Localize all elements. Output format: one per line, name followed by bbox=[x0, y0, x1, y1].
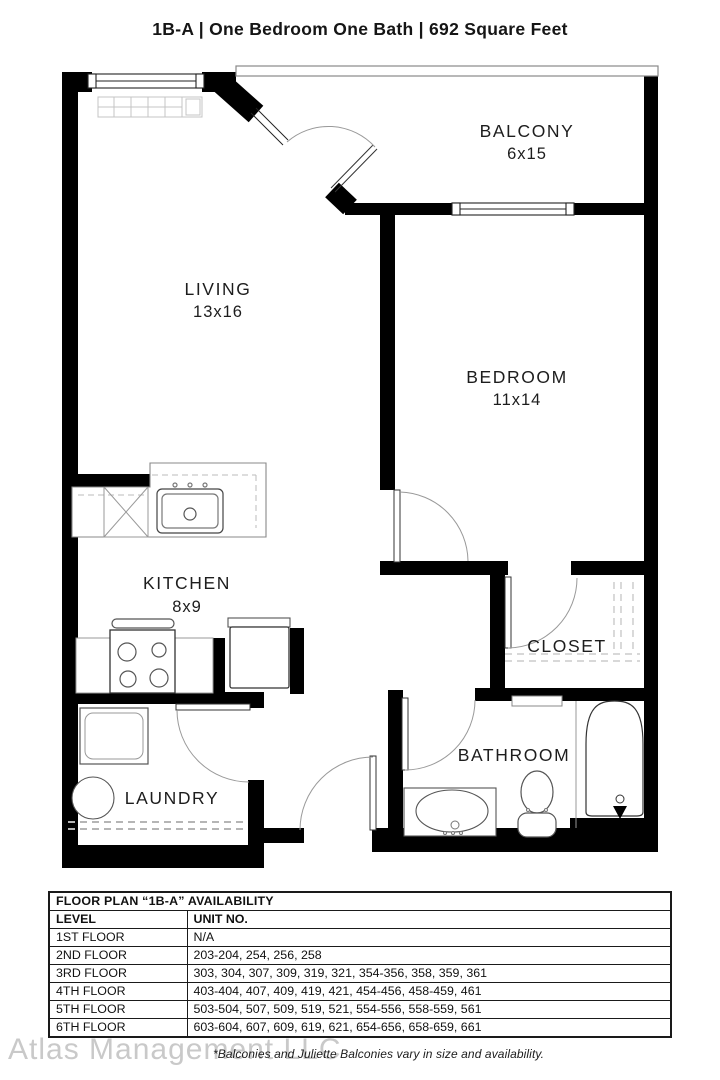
balcony-dims: 6x15 bbox=[507, 145, 547, 163]
table-row: 3RD FLOOR 303, 304, 307, 309, 319, 321, … bbox=[49, 965, 671, 983]
bedroom-window bbox=[452, 203, 574, 215]
level-cell: 1ST FLOOR bbox=[49, 929, 187, 947]
level-cell: 4TH FLOOR bbox=[49, 983, 187, 1001]
baseboard-heater-icon bbox=[98, 97, 202, 117]
floor-plan: LIVING 13x16 BALCONY 6x15 BEDROOM 11x14 … bbox=[0, 0, 720, 882]
laundry-shelf-dashed bbox=[68, 822, 246, 829]
kitchen-label: KITCHEN bbox=[143, 573, 231, 593]
fridge-icon bbox=[228, 618, 290, 688]
table-title-row: FLOOR PLAN “1B-A” AVAILABILITY bbox=[49, 892, 671, 911]
toilet-icon bbox=[518, 771, 556, 837]
units-cell: 303, 304, 307, 309, 319, 321, 354-356, 3… bbox=[187, 965, 671, 983]
bedroom-label: BEDROOM bbox=[466, 367, 568, 387]
closet-label: CLOSET bbox=[527, 636, 607, 656]
units-cell: 503-504, 507, 509, 519, 521, 554-556, 55… bbox=[187, 1001, 671, 1019]
living-dims: 13x16 bbox=[193, 303, 243, 321]
level-cell: 2ND FLOOR bbox=[49, 947, 187, 965]
living-label: LIVING bbox=[185, 279, 252, 299]
balcony-label: BALCONY bbox=[480, 121, 575, 141]
water-heater-icon bbox=[72, 777, 114, 819]
table-row: 4TH FLOOR 403-404, 407, 409, 419, 421, 4… bbox=[49, 983, 671, 1001]
units-cell: 403-404, 407, 409, 419, 421, 454-456, 45… bbox=[187, 983, 671, 1001]
vanity-sink-icon bbox=[404, 788, 496, 836]
table-row: 1ST FLOOR N/A bbox=[49, 929, 671, 947]
kitchen-sink-icon bbox=[157, 483, 223, 533]
floor-plan-sheet: 1B-A | One Bedroom One Bath | 692 Square… bbox=[0, 0, 720, 1080]
balcony-railing bbox=[236, 66, 658, 76]
balcony-door-sidelite bbox=[251, 108, 288, 145]
balcony-door bbox=[287, 126, 377, 192]
units-cell: N/A bbox=[187, 929, 671, 947]
bath-shelf bbox=[512, 696, 562, 706]
table-row: 2ND FLOOR 203-204, 254, 256, 258 bbox=[49, 947, 671, 965]
col-header-units: UNIT NO. bbox=[187, 911, 671, 929]
table-title: FLOOR PLAN “1B-A” AVAILABILITY bbox=[49, 892, 671, 911]
washer-icon bbox=[80, 708, 148, 764]
stove-icon bbox=[76, 619, 213, 693]
availability-table: FLOOR PLAN “1B-A” AVAILABILITY LEVEL UNI… bbox=[48, 891, 672, 1038]
laundry-door bbox=[176, 704, 250, 782]
table-row: 5TH FLOOR 503-504, 507, 509, 519, 521, 5… bbox=[49, 1001, 671, 1019]
level-cell: 3RD FLOOR bbox=[49, 965, 187, 983]
bathtub-icon bbox=[576, 701, 643, 828]
kitchen-dims: 8x9 bbox=[172, 598, 202, 616]
table-header-row: LEVEL UNIT NO. bbox=[49, 911, 671, 929]
col-header-level: LEVEL bbox=[49, 911, 187, 929]
bathroom-label: BATHROOM bbox=[458, 745, 571, 765]
bedroom-door bbox=[394, 490, 468, 562]
entry-door bbox=[300, 756, 376, 830]
balcony-disclaimer: *Balconies and Juliette Balconies vary i… bbox=[213, 1047, 544, 1061]
units-cell: 203-204, 254, 256, 258 bbox=[187, 947, 671, 965]
laundry-label: LAUNDRY bbox=[125, 788, 220, 808]
bedroom-dims: 11x14 bbox=[493, 391, 542, 409]
level-cell: 5TH FLOOR bbox=[49, 1001, 187, 1019]
living-window bbox=[88, 74, 204, 88]
